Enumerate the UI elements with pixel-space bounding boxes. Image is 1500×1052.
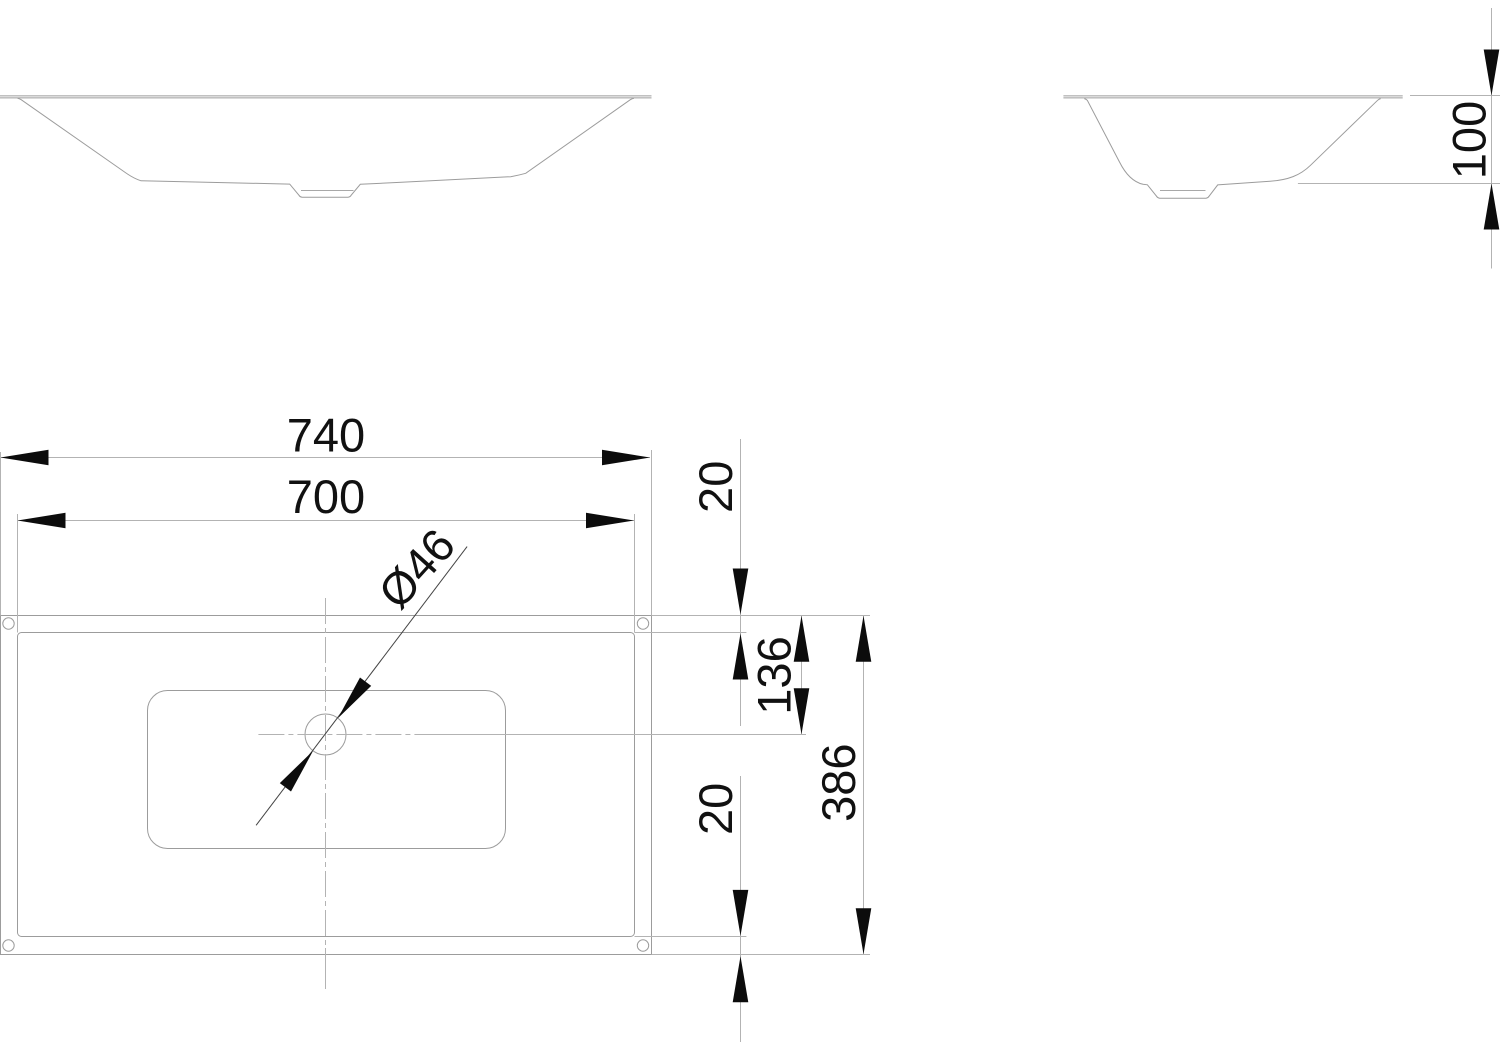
svg-text:20: 20 xyxy=(689,783,742,835)
svg-text:20: 20 xyxy=(689,461,742,513)
svg-text:386: 386 xyxy=(812,743,865,821)
svg-text:100: 100 xyxy=(1442,101,1495,179)
svg-text:136: 136 xyxy=(748,636,801,714)
svg-text:740: 740 xyxy=(287,408,365,461)
svg-text:700: 700 xyxy=(287,470,365,523)
